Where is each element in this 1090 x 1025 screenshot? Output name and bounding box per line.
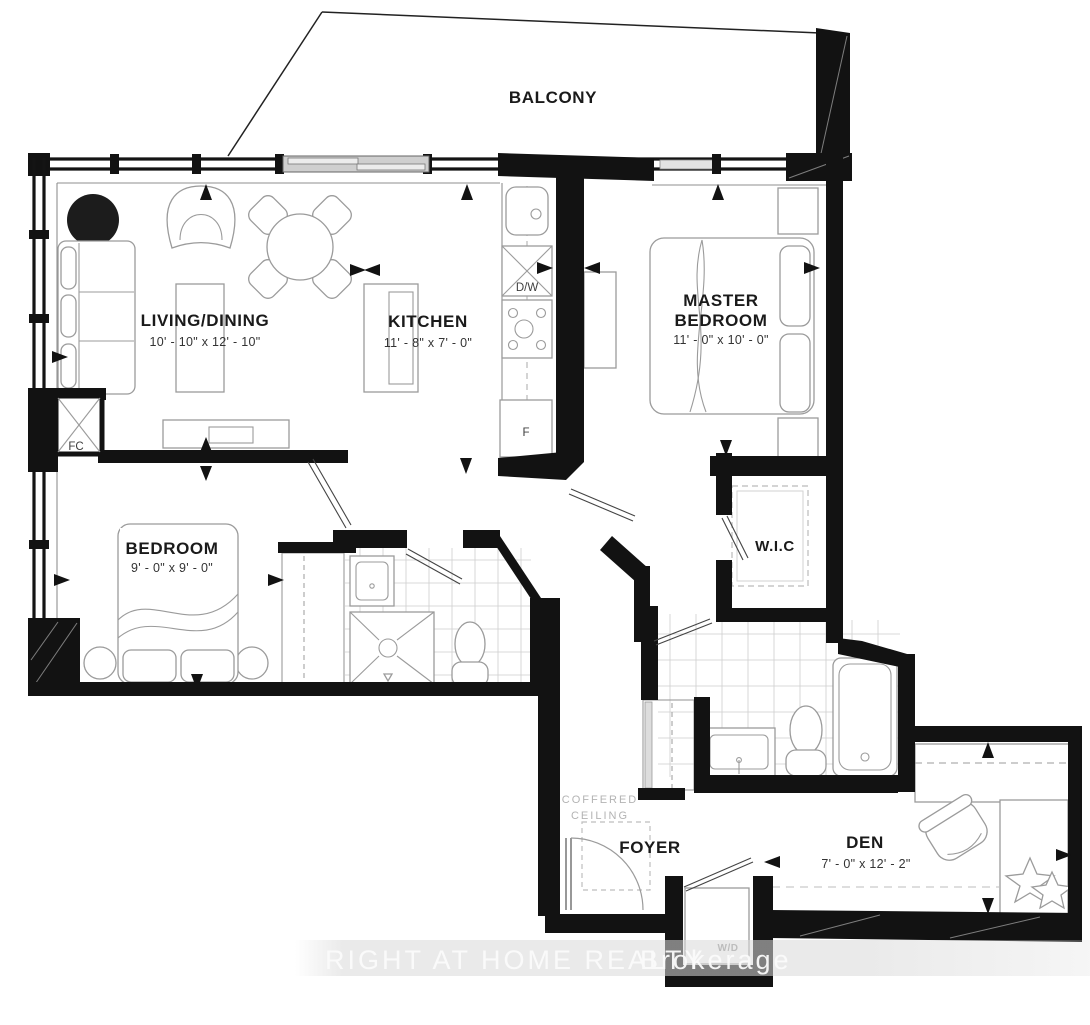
wic-label: W.I.C	[755, 538, 795, 555]
floor-plan-drawing: BALCONY LIVING/DINING 10' - 10" x 12' - …	[0, 0, 1090, 1025]
bathroom-2-door	[654, 619, 712, 645]
wic-door	[722, 516, 748, 560]
bathroom-1-door	[406, 549, 462, 584]
office-chair	[917, 792, 994, 866]
watermark: RIGHT AT HOME REALTY Brokerage	[295, 940, 1090, 976]
floor-plan-page: BALCONY LIVING/DINING 10' - 10" x 12' - …	[0, 0, 1090, 1025]
kitchen-dims: 11' - 8" x 7' - 0"	[384, 336, 472, 350]
pillow	[780, 246, 810, 326]
side-table	[236, 647, 268, 679]
bedroom-door	[308, 459, 351, 528]
vanity-sink	[703, 728, 775, 776]
dining-table	[267, 214, 333, 280]
pillow	[181, 650, 234, 682]
nightstand	[778, 418, 818, 458]
master-suite-door	[569, 489, 635, 521]
armchair	[167, 186, 235, 248]
kitchen-sink	[506, 187, 548, 235]
den-label: DEN	[846, 833, 884, 852]
bathroom-sink	[350, 556, 394, 606]
bathroom-1-fixtures	[350, 556, 488, 686]
bedroom-dims: 9' - 0" x 9' - 0"	[131, 561, 213, 575]
sliding-door	[283, 156, 429, 172]
balcony-outline	[228, 12, 850, 162]
side-table	[84, 647, 116, 679]
tv-console	[163, 420, 289, 448]
master-dims: 11' - 0" x 10' - 0"	[673, 333, 769, 347]
living-label: LIVING/DINING	[141, 311, 270, 330]
stove	[502, 300, 552, 358]
pillow	[780, 334, 810, 412]
shower	[350, 612, 434, 684]
side-table	[67, 194, 119, 246]
bathtub	[833, 658, 897, 776]
fan-coil-label: FC	[68, 441, 83, 453]
toilet	[452, 622, 488, 686]
bedroom-closet	[282, 553, 344, 683]
balcony-label: BALCONY	[509, 88, 597, 107]
sofa	[58, 241, 135, 394]
nightstand	[778, 188, 818, 234]
master-label-line2: BEDROOM	[675, 311, 768, 330]
coffered-ceiling-label-line1: COFFERED	[562, 794, 639, 806]
watermark-brokerage: Brokerage	[640, 945, 792, 975]
wic-shelving	[732, 486, 808, 586]
wd-door	[684, 858, 753, 891]
fridge-label: F	[522, 427, 529, 439]
coffered-ceiling-label-line2: CEILING	[571, 810, 629, 822]
living-dims: 10' - 10" x 12' - 10"	[150, 335, 261, 349]
pillow	[123, 650, 176, 682]
desk	[915, 744, 1070, 802]
den-dims: 7' - 0" x 12' - 2"	[821, 857, 910, 871]
master-label-line1: MASTER	[683, 291, 758, 310]
bedroom-label: BEDROOM	[126, 539, 219, 558]
foyer-label: FOYER	[619, 838, 681, 857]
hall-linen-closet	[643, 700, 694, 790]
toilet	[786, 706, 826, 776]
dishwasher-label: D/W	[516, 282, 539, 294]
dresser	[584, 272, 616, 368]
kitchen-label: KITCHEN	[388, 312, 468, 331]
